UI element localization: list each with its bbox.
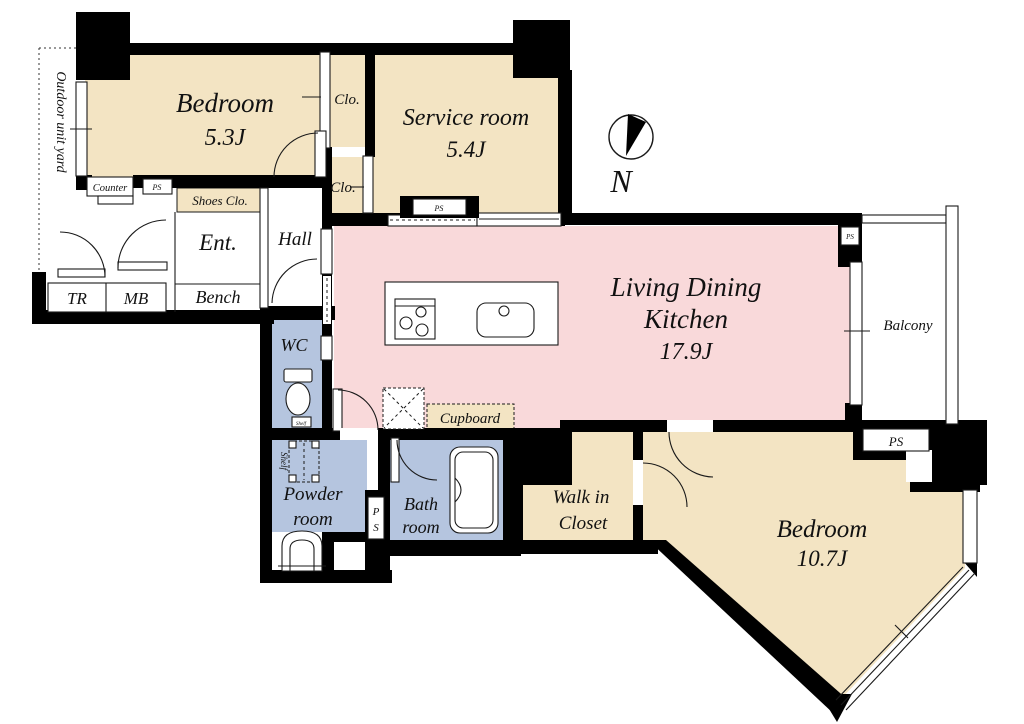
- label-cupboard: Cupboard: [440, 411, 501, 427]
- label-bedroom2-size: 10.7J: [797, 546, 849, 571]
- floor-plan-page: N Bedroom 5.3J Clo. Clo. Service room 5.…: [0, 0, 1024, 724]
- door-leaf: [315, 131, 326, 177]
- wall-segment: [513, 20, 570, 78]
- wall-segment: [930, 450, 987, 485]
- floor-plan: N Bedroom 5.3J Clo. Clo. Service room 5.…: [0, 0, 1024, 724]
- wall-segment: [378, 540, 521, 556]
- label-wic-line1: Walk in: [553, 487, 610, 508]
- label-closet-top: Clo.: [334, 92, 359, 108]
- wall-segment: [560, 213, 850, 225]
- window-bedroom2: [963, 490, 977, 563]
- compass: N: [609, 114, 653, 199]
- wall-segment: [508, 540, 658, 554]
- wall-segment: [76, 12, 130, 80]
- compass-label: N: [609, 163, 633, 199]
- door-leaf: [333, 389, 342, 431]
- label-bedroom1-size: 5.3J: [205, 125, 247, 151]
- label-counter: Counter: [93, 183, 128, 194]
- label-powder-line2: room: [293, 509, 332, 530]
- label-ps: PS: [434, 204, 444, 213]
- label-shoes-closet: Shoes Clo.: [192, 193, 248, 208]
- tr-mb-cabinet: [48, 283, 166, 312]
- door-gap: [667, 420, 713, 432]
- door-arc: [118, 220, 166, 268]
- counter-step: [98, 196, 133, 204]
- wall-segment: [560, 420, 667, 432]
- label-bedroom1-name: Bedroom: [176, 88, 274, 118]
- kitchen-island: [385, 282, 558, 345]
- label-bath-line1: Bath: [404, 494, 438, 514]
- balcony-railing-top: [862, 215, 946, 223]
- label-entrance: Ent.: [198, 230, 237, 255]
- label-bath-line2: room: [402, 517, 439, 537]
- door-gap: [633, 460, 643, 505]
- washer-corner: [312, 441, 319, 448]
- label-balcony: Balcony: [883, 318, 932, 334]
- label-tr: TR: [67, 289, 87, 308]
- label-hall: Hall: [277, 229, 312, 250]
- wall-segment: [518, 432, 572, 485]
- washer-corner: [289, 475, 296, 482]
- label-bench: Bench: [196, 287, 241, 307]
- label-ps-p: P: [372, 506, 380, 518]
- door-leaf: [118, 262, 167, 270]
- compass-needle: [626, 114, 646, 156]
- wall-segment: [260, 306, 272, 583]
- label-closet-mid: Clo.: [330, 180, 355, 196]
- wall-segment: [260, 428, 340, 440]
- wall-segment: [558, 70, 572, 218]
- label-mb: MB: [123, 289, 149, 308]
- wall-segment: [365, 52, 375, 157]
- label-outdoor-unit-yard: Outdoor unit yard: [53, 71, 68, 173]
- door-leaf: [391, 438, 399, 482]
- ent-hall-divider: [260, 188, 268, 308]
- balcony-railing-right: [946, 206, 958, 424]
- label-wic-line2: Closet: [559, 513, 608, 534]
- label-ps: PS: [152, 183, 162, 192]
- wall-segment: [378, 433, 390, 491]
- label-shelf-powder: Shelf: [279, 452, 289, 471]
- label-ldk-size: 17.9J: [660, 339, 714, 365]
- label-ps: PS: [845, 233, 854, 241]
- door-leaf: [58, 269, 105, 277]
- toilet-tank: [284, 369, 312, 382]
- door-arc: [272, 259, 317, 303]
- wall-segment: [508, 485, 523, 540]
- closet-door: [363, 156, 373, 213]
- wall-segment: [713, 420, 853, 432]
- window-ldk: [850, 262, 862, 405]
- label-ldk-line1: Living Dining: [610, 272, 762, 302]
- vanity-sink: [282, 531, 322, 571]
- label-ps-s: S: [373, 522, 379, 534]
- washer-corner: [312, 475, 319, 482]
- door-leaf: [321, 229, 332, 274]
- label-bedroom2-name: Bedroom: [777, 516, 868, 543]
- label-service-name: Service room: [403, 105, 529, 131]
- label-wc: WC: [281, 335, 309, 355]
- toilet-bowl: [286, 383, 310, 415]
- door-gap: [340, 428, 378, 440]
- label-service-size: 5.4J: [447, 137, 488, 162]
- label-shelf-wc: Shelf: [296, 422, 307, 427]
- label-ldk-line2: Kitchen: [643, 304, 728, 334]
- bathtub: [450, 447, 498, 533]
- label-ps: PS: [888, 434, 904, 449]
- notch-white: [906, 450, 932, 482]
- wc-door-leaf: [321, 336, 332, 360]
- washer-corner: [289, 441, 296, 448]
- label-powder-line1: Powder: [282, 484, 343, 505]
